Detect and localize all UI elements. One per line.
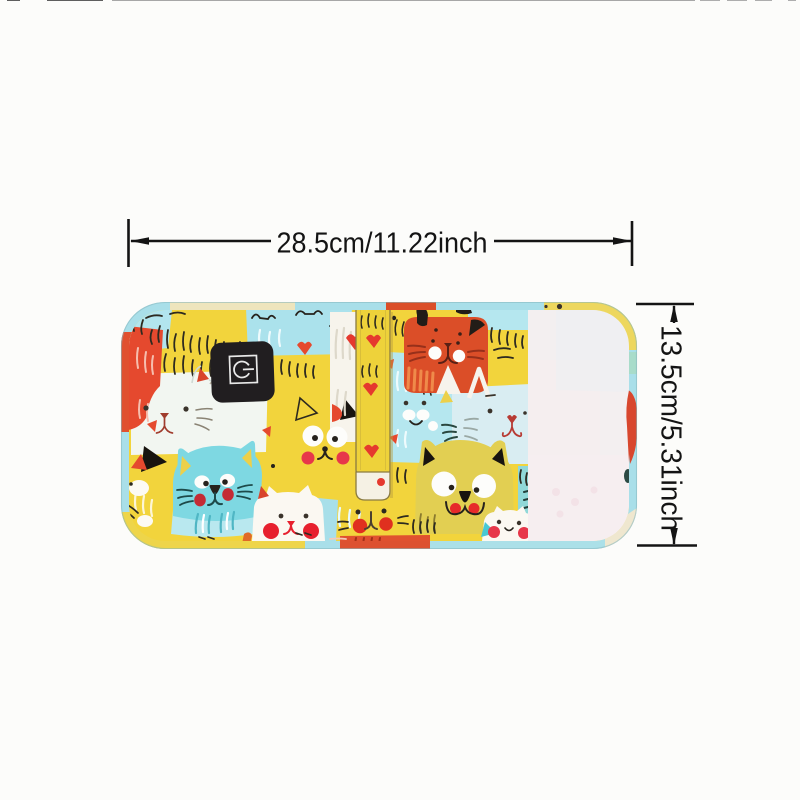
svg-text:28.5cm/11.22inch: 28.5cm/11.22inch — [277, 228, 488, 260]
svg-text:13.5cm/5.31inch: 13.5cm/5.31inch — [655, 325, 687, 531]
